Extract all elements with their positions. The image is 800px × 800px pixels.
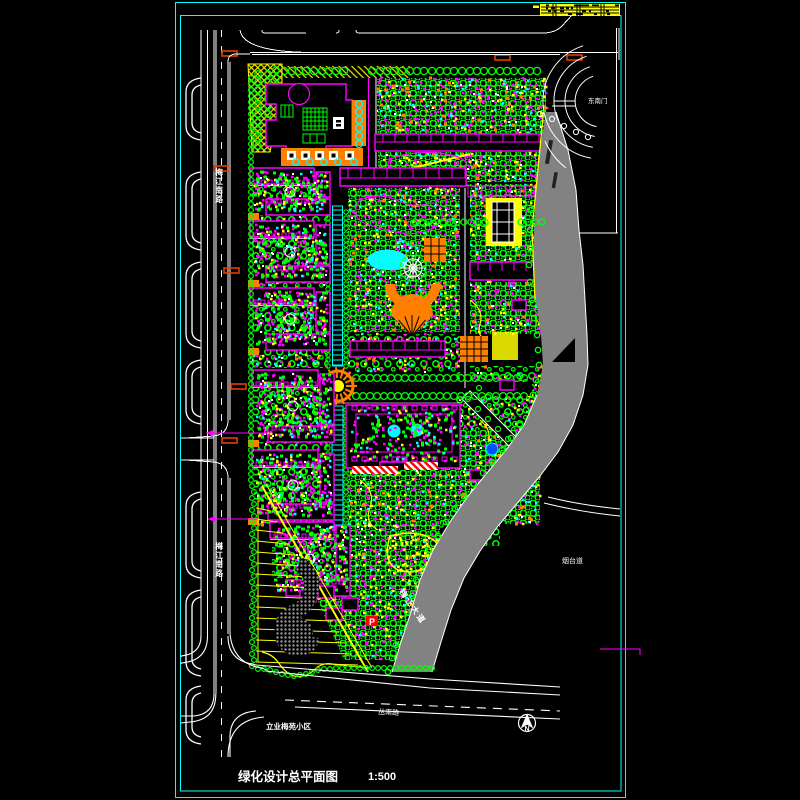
- svg-text:烟台道: 烟台道: [562, 556, 583, 565]
- svg-text:绿化设计总平面图: 绿化设计总平面图: [238, 769, 338, 784]
- svg-text:1:500: 1:500: [368, 771, 396, 783]
- svg-text:梅江南路: 梅江南路: [214, 167, 224, 204]
- svg-text:立业梅苑小区: 立业梅苑小区: [266, 721, 311, 731]
- svg-text:N: N: [524, 726, 529, 733]
- svg-text:P: P: [369, 617, 375, 627]
- svg-text:东南门: 东南门: [588, 96, 608, 105]
- svg-text:梅江南路: 梅江南路: [214, 541, 224, 578]
